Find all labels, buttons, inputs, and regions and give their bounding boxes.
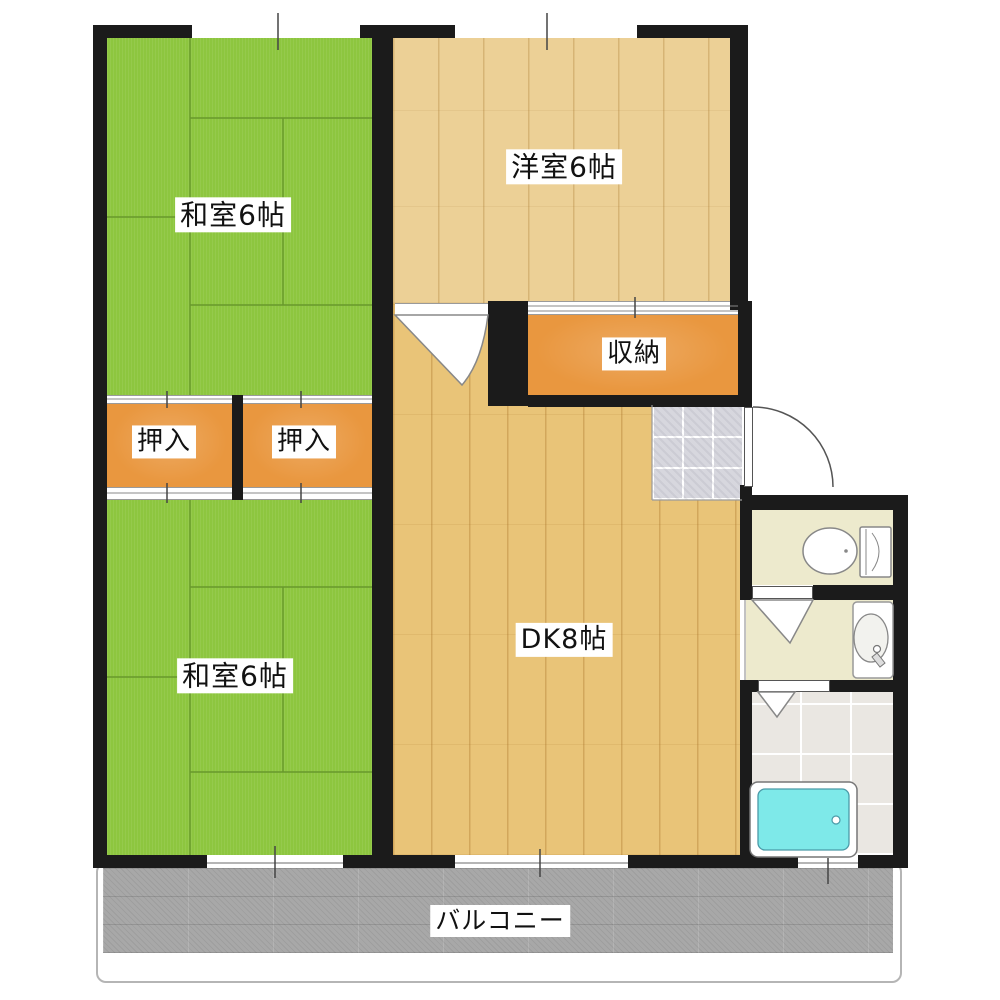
room-label-yoshitsu: 洋室6帖 [506, 149, 622, 184]
entrance-door-arc [753, 407, 833, 487]
wall-segment [813, 585, 893, 600]
room-label-balcony: バルコニー [430, 905, 570, 937]
wall-segment [343, 855, 455, 868]
wall-segment [858, 855, 893, 868]
wall-segment [730, 25, 748, 310]
fusuma-lower-left [107, 487, 232, 500]
room-label-washitsu-top: 和室6帖 [175, 197, 291, 232]
oshiire-right-sliding-door [243, 395, 372, 404]
oshiire-left-sliding-door [107, 395, 232, 404]
wall-segment [528, 395, 752, 407]
shuno-sliding-door [528, 301, 738, 315]
fusuma-lower-right [243, 487, 372, 500]
room-toilet [752, 510, 893, 585]
genkan-entry-tile [652, 405, 742, 500]
wall-segment [740, 510, 752, 600]
room-label-shuno: 収納 [602, 337, 666, 370]
entrance-door-leaf [744, 407, 753, 487]
wall-segment [93, 855, 207, 868]
room-bathroom [750, 692, 893, 855]
room-label-washitsu-bottom: 和室6帖 [177, 658, 293, 693]
wall-segment [488, 301, 528, 406]
room-label-oshiire-left: 押入 [132, 425, 196, 458]
bathroom-door-leaf [758, 680, 830, 692]
wall-segment [628, 855, 798, 868]
wall-segment [372, 25, 393, 868]
room-label-dk: DK8帖 [516, 623, 613, 657]
floor-plan: 和室6帖 洋室6帖 収納 押入 押入 和室6帖 DK8帖 バルコニー [0, 0, 1000, 1000]
wall-segment [830, 680, 893, 692]
room-label-oshiire-right: 押入 [272, 425, 336, 458]
room-washroom [746, 600, 893, 680]
wall-segment [93, 25, 192, 38]
toilet-door-leaf [752, 586, 813, 599]
wall-segment [740, 680, 758, 692]
yoshitsu-door-opening [395, 303, 488, 316]
wall-segment [740, 495, 908, 510]
wall-segment [232, 395, 243, 500]
wall-segment [93, 25, 107, 868]
wall-segment [893, 495, 908, 868]
wall-segment [740, 680, 752, 868]
wall-segment [738, 301, 752, 407]
